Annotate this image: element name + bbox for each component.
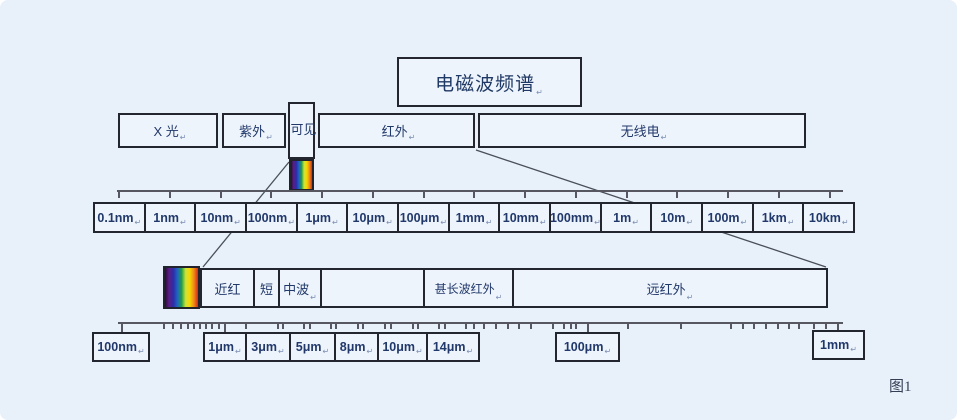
- label-text: 可见: [290, 122, 316, 138]
- label-text: 1μm: [208, 340, 234, 354]
- main-ruler-tick: [321, 190, 323, 198]
- wavelength-label-10μm: 10μm↵: [348, 204, 399, 231]
- label-text: 100nm: [248, 211, 288, 225]
- infrared-wavelength-labels-2: 100μm↵: [555, 332, 620, 362]
- main-ruler-tick: [778, 190, 780, 198]
- band-box-visible: 可见: [288, 102, 315, 159]
- band-box-infrared: 红外↵: [318, 113, 475, 148]
- wavelength-label-10km: 10km↵: [804, 204, 853, 231]
- line-break-mark: ↵: [138, 347, 145, 360]
- label-text: 近红: [214, 279, 240, 298]
- infrared-ruler-tick: [798, 322, 800, 329]
- line-break-mark: ↵: [416, 347, 423, 360]
- label-text: 短: [260, 279, 273, 298]
- wavelength-label-1mm: 1mm↵: [450, 204, 501, 231]
- figure-caption: 图1: [889, 375, 912, 396]
- label-text: 10m: [660, 211, 685, 225]
- figure-canvas: 电磁波频谱↵ 图1 X 光↵紫外↵可见红外↵无线电↵0.1nm↵1nm↵10nm…: [0, 0, 957, 420]
- label-text: 100μm: [400, 211, 440, 225]
- label-text: 14μm: [433, 340, 466, 354]
- label-text: 1km: [762, 211, 787, 225]
- infrared-ruler-tick: [444, 322, 446, 329]
- label-text: 1nm: [153, 211, 179, 225]
- infrared-ruler-tick: [277, 322, 279, 329]
- label-text: 1μm: [305, 211, 331, 225]
- line-break-mark: ↵: [466, 347, 473, 360]
- visible: 可见: [290, 104, 317, 157]
- infrared-ruler-tick: [552, 322, 554, 329]
- label-text: 100μm: [564, 340, 604, 354]
- main-ruler-tick: [118, 190, 120, 198]
- main-ruler-tick: [626, 190, 628, 198]
- line-break-mark: ↵: [842, 218, 849, 231]
- title-box: 电磁波频谱↵: [397, 57, 582, 107]
- infrared-ruler-tick: [211, 322, 213, 329]
- line-break-mark: ↵: [741, 218, 748, 231]
- infrared-ruler-tick: [187, 322, 189, 329]
- near-infrared: 近红: [202, 270, 255, 306]
- line-break-mark: ↵: [850, 345, 857, 358]
- line-break-mark: ↵: [687, 293, 694, 306]
- line-break-mark: ↵: [386, 218, 393, 231]
- main-ruler-tick: [220, 190, 222, 198]
- visible-spectrum-strip-expanded: [163, 266, 200, 309]
- infrared-ruler-tick: [753, 322, 755, 329]
- line-break-mark: ↵: [180, 133, 187, 146]
- infrared-ruler-tick: [575, 322, 577, 329]
- infrared-ruler-tick: [412, 322, 414, 329]
- unlabeled-band: [322, 270, 425, 306]
- wavelength-label-10nm: 10nm↵: [196, 204, 247, 231]
- line-break-mark: ↵: [440, 218, 447, 231]
- wavelength-label-1m: 1m↵: [602, 204, 653, 231]
- infrared-ruler-tick: [218, 322, 220, 329]
- label-1μm: 1μm↵: [205, 334, 247, 360]
- band-box-radio: 无线电↵: [478, 113, 806, 148]
- infrared-ruler-tick: [303, 322, 305, 329]
- infrared-ruler-tick: [530, 322, 532, 329]
- main-ruler-tick: [676, 190, 678, 198]
- label-10μm: 10μm↵: [379, 334, 428, 360]
- infrared-ruler-tick: [417, 322, 419, 329]
- short-wave-infrared: 短: [255, 270, 280, 306]
- wavelength-label-100μm: 100μm↵: [399, 204, 450, 231]
- line-break-mark: ↵: [496, 293, 503, 306]
- infrared-band: 近红短中波↵甚长波红外↵远红外↵: [200, 268, 828, 308]
- line-break-mark: ↵: [788, 218, 795, 231]
- far-infrared: 远红外↵: [514, 270, 826, 306]
- wavelength-label-100m: 100m↵: [703, 204, 754, 231]
- main-wavelength-labels: 0.1nm↵1nm↵10nm↵100nm↵1μm↵10μm↵100μm↵1mm↵…: [93, 202, 855, 233]
- main-ruler-tick: [575, 190, 577, 198]
- label-text: 10nm: [201, 211, 234, 225]
- wavelength-label-10m: 10m↵: [652, 204, 703, 231]
- wavelength-label-100nm: 100nm↵: [247, 204, 298, 231]
- infrared-ruler-tick: [205, 322, 207, 329]
- line-break-mark: ↵: [536, 88, 544, 105]
- line-break-mark: ↵: [686, 218, 693, 231]
- label-3μm: 3μm↵: [247, 334, 291, 360]
- main-ruler-tick: [829, 190, 831, 198]
- label-text: 8μm: [340, 340, 366, 354]
- line-break-mark: ↵: [486, 218, 493, 231]
- infrared-ruler-tick: [335, 322, 337, 329]
- label-text: X 光: [154, 121, 179, 140]
- infrared-ruler-tick: [180, 322, 182, 329]
- infrared-ruler-tick: [172, 322, 174, 329]
- label-text: 1mm: [820, 338, 849, 352]
- label-text: 10μm: [382, 340, 415, 354]
- label-100μm: 100μm↵: [557, 334, 618, 360]
- infrared-ruler-tick: [495, 322, 497, 329]
- infrared-ruler-tick: [199, 322, 201, 329]
- line-break-mark: ↵: [540, 218, 547, 231]
- label-text: 3μm: [251, 340, 277, 354]
- main-ruler-tick: [473, 190, 475, 198]
- label-text: 无线电: [621, 121, 660, 140]
- label-text: 1m: [613, 211, 631, 225]
- label-text: 100m: [708, 211, 740, 225]
- infrared-ruler-line: [118, 322, 843, 324]
- label-text: 0.1nm: [97, 211, 133, 225]
- infrared-ruler-tick: [362, 322, 364, 329]
- label-text: 远红外: [647, 279, 686, 298]
- line-break-mark: ↵: [266, 133, 273, 146]
- label-text: 10mm: [503, 211, 539, 225]
- wavelength-label-1km: 1km↵: [754, 204, 805, 231]
- line-break-mark: ↵: [409, 133, 416, 146]
- infrared-ruler-tick: [438, 322, 440, 329]
- line-break-mark: ↵: [180, 218, 187, 231]
- line-break-mark: ↵: [323, 347, 330, 360]
- main-ruler-line: [117, 190, 843, 192]
- wavelength-label-1nm: 1nm↵: [146, 204, 197, 231]
- infrared-ruler-tick: [788, 322, 790, 329]
- wavelength-label-0.1nm: 0.1nm↵: [95, 204, 146, 231]
- band-box-ultraviolet: 紫外↵: [222, 113, 286, 148]
- label-text: 甚长波红外: [435, 280, 495, 297]
- infrared-ruler-tick: [507, 322, 509, 329]
- infrared-ruler-tick: [483, 322, 485, 329]
- label-text: 100nm: [97, 340, 137, 354]
- infrared-ruler-tick: [330, 322, 332, 329]
- line-break-mark: ↵: [234, 218, 241, 231]
- wavelength-label-1μm: 1μm↵: [298, 204, 349, 231]
- infrared-ruler-tick: [765, 322, 767, 329]
- main-ruler-tick: [270, 190, 272, 198]
- x-ray: X 光↵: [120, 115, 220, 146]
- label-1mm: 1mm↵: [814, 332, 863, 358]
- infrared-ruler-tick: [563, 322, 565, 329]
- label-text: 红外: [382, 121, 408, 140]
- infrared-ruler-tick: [384, 322, 386, 329]
- infrared-ruler-tick: [465, 322, 467, 329]
- infrared-ruler-tick: [680, 322, 682, 329]
- infrared-wavelength-labels-0: 100nm↵: [92, 332, 150, 362]
- ultraviolet: 紫外↵: [224, 115, 288, 146]
- band-box-x-ray: X 光↵: [118, 113, 218, 148]
- infrared-ruler-tick: [245, 322, 247, 329]
- label-text: 1mm: [456, 211, 485, 225]
- infrared-ruler-tick: [282, 322, 284, 329]
- infrared-wavelength-labels-3: 1mm↵: [812, 330, 865, 360]
- infrared-wavelength-labels-1: 1μm↵3μm↵5μm↵8μm↵10μm↵14μm↵: [203, 332, 480, 362]
- label-5μm: 5μm↵: [291, 334, 336, 360]
- label-text: 10km: [809, 211, 841, 225]
- infrared-ruler-tick: [627, 322, 629, 329]
- line-break-mark: ↵: [604, 347, 611, 360]
- line-break-mark: ↵: [594, 218, 601, 231]
- label-text: 100mm: [551, 211, 593, 225]
- line-break-mark: ↵: [235, 347, 242, 360]
- line-break-mark: ↵: [288, 218, 295, 231]
- label-text: 紫外: [239, 121, 265, 140]
- wavelength-label-100mm: 100mm↵: [551, 204, 602, 231]
- infrared-ruler-tick: [813, 322, 815, 329]
- line-break-mark: ↵: [661, 133, 668, 146]
- infrared-ruler-tick: [163, 322, 165, 329]
- infrared-ruler-tick: [518, 322, 520, 329]
- infrared-ruler-tick: [742, 322, 744, 329]
- infrared-ruler-tick: [309, 322, 311, 329]
- visible-spectrum-strip: [289, 159, 314, 191]
- label-text: 5μm: [296, 340, 322, 354]
- main-ruler-tick: [169, 190, 171, 198]
- main-ruler-tick: [727, 190, 729, 198]
- infrared-ruler-tick: [730, 322, 732, 329]
- mid-wave-infrared: 中波↵: [280, 270, 322, 306]
- infrared: 红外↵: [320, 115, 477, 146]
- infrared-ruler-tick: [570, 322, 572, 329]
- line-break-mark: ↵: [310, 293, 317, 306]
- infrared-ruler-tick: [777, 322, 779, 329]
- radio: 无线电↵: [480, 115, 808, 146]
- infrared-ruler-tick: [390, 322, 392, 329]
- label-8μm: 8μm↵: [336, 334, 379, 360]
- label-text: 10μm: [353, 211, 386, 225]
- very-long-wave-infrared: 甚长波红外↵: [425, 270, 514, 306]
- label-100nm: 100nm↵: [94, 334, 148, 360]
- main-ruler-tick: [423, 190, 425, 198]
- wavelength-label-10mm: 10mm↵: [500, 204, 551, 231]
- line-break-mark: ↵: [278, 347, 285, 360]
- infrared-ruler-tick: [825, 322, 827, 329]
- main-ruler-tick: [372, 190, 374, 198]
- infrared-ruler-tick: [193, 322, 195, 329]
- figure-title: 电磁波频谱: [435, 69, 535, 96]
- label-14μm: 14μm↵: [428, 334, 478, 360]
- label-text: 中波: [283, 279, 309, 298]
- main-ruler-tick: [524, 190, 526, 198]
- infrared-ruler-tick: [357, 322, 359, 329]
- infrared-ruler-tick: [473, 322, 475, 329]
- line-break-mark: ↵: [367, 347, 374, 360]
- line-break-mark: ↵: [135, 218, 142, 231]
- line-break-mark: ↵: [632, 218, 639, 231]
- line-break-mark: ↵: [332, 218, 339, 231]
